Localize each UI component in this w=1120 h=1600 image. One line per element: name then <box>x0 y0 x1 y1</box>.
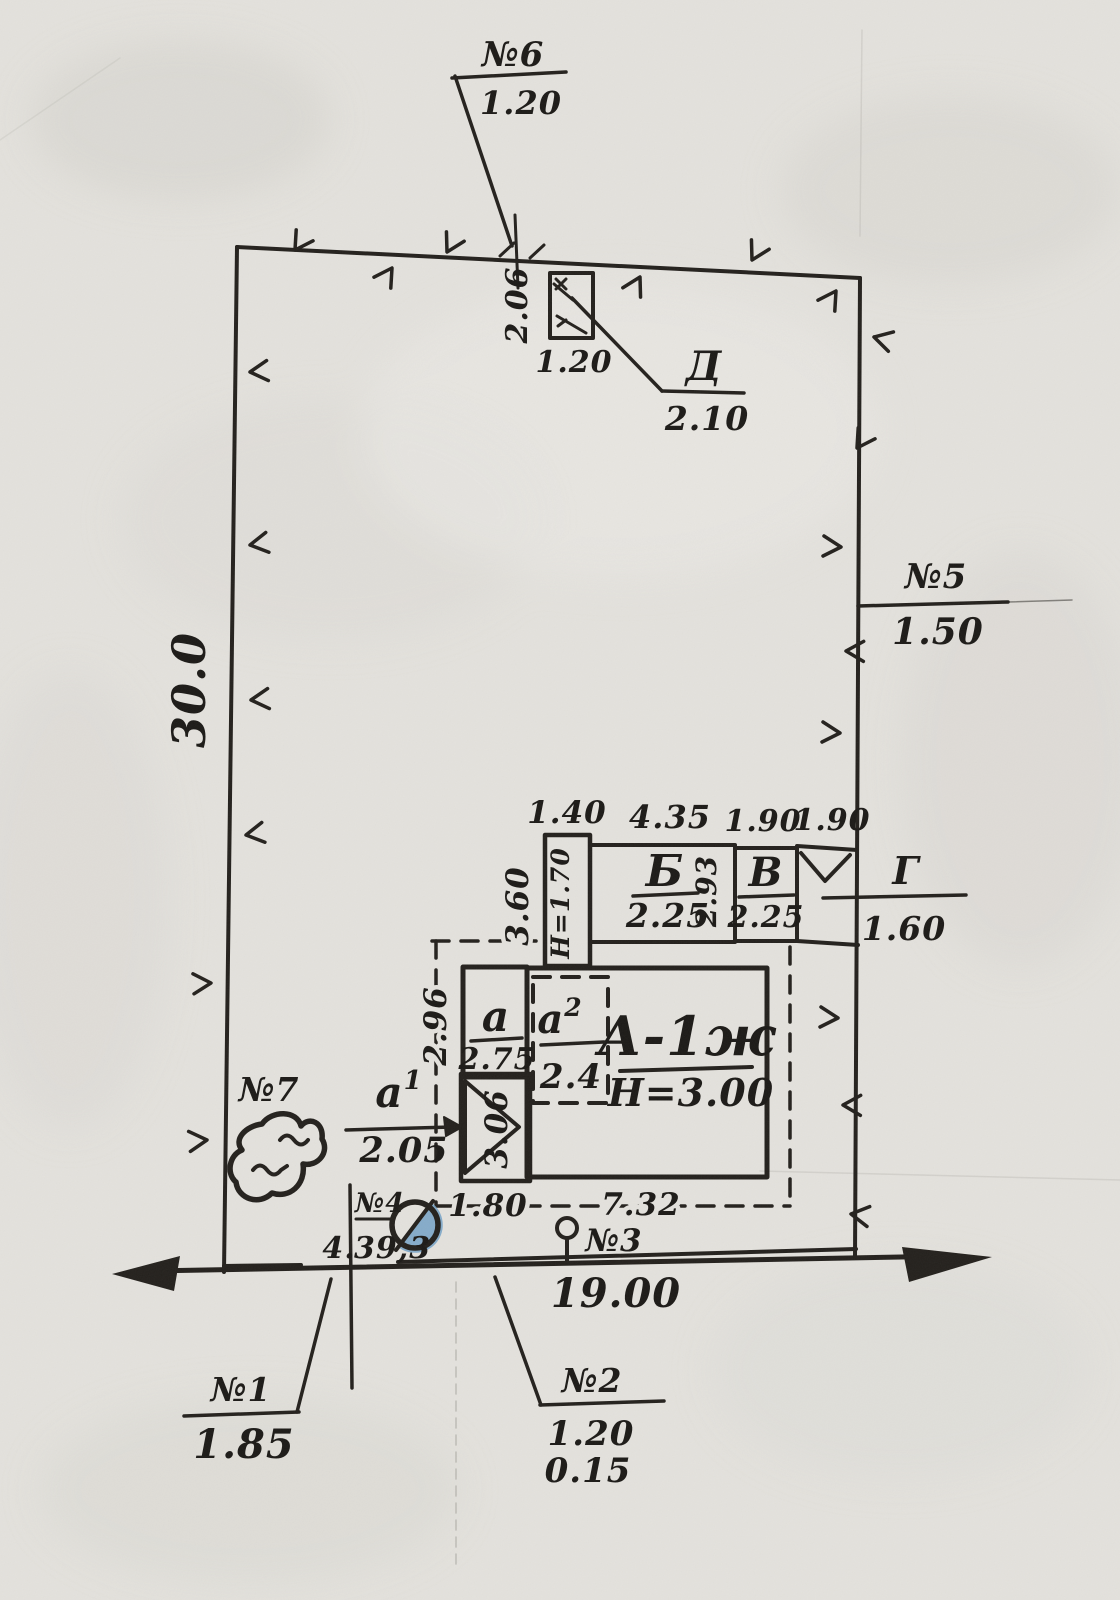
scan-grain-overlay <box>0 0 1120 1600</box>
site-plan-drawing: №6 1.20 1.20 2.06 Д 2.10 №5 1.50 30.0 1.… <box>0 0 1120 1600</box>
scanned-site-plan-sheet: №6 1.20 1.20 2.06 Д 2.10 №5 1.50 30.0 1.… <box>0 0 1120 1600</box>
